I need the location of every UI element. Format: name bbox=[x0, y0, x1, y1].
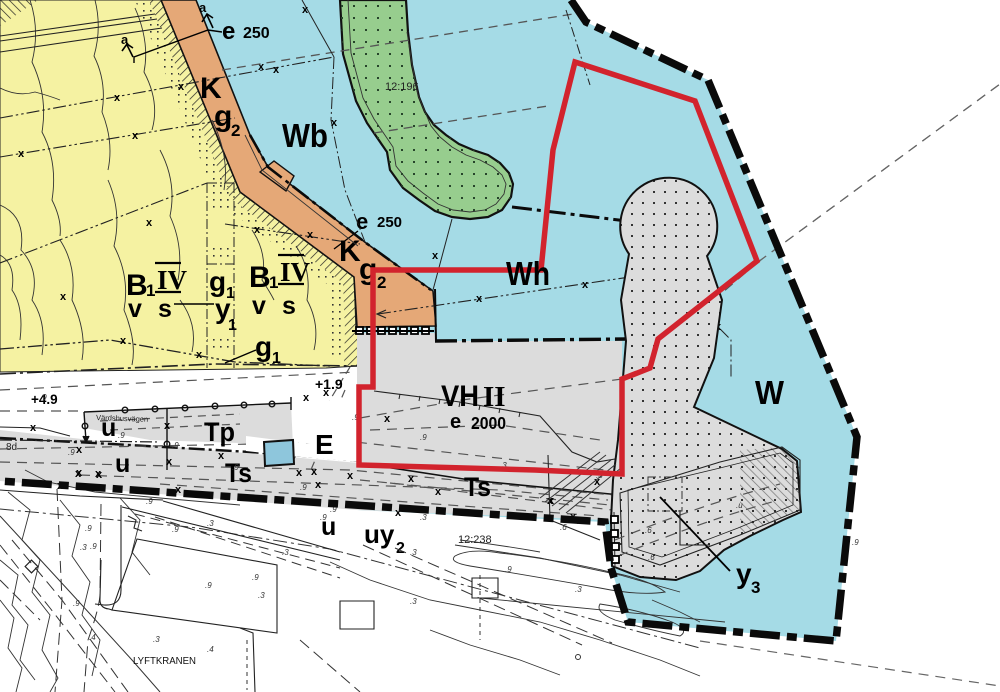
svg-text:x: x bbox=[120, 335, 127, 347]
svg-text:Tp: Tp bbox=[204, 417, 235, 447]
svg-text:1: 1 bbox=[146, 281, 155, 300]
svg-text:.3: .3 bbox=[410, 597, 417, 606]
svg-text:x: x bbox=[258, 61, 265, 73]
svg-text:x: x bbox=[311, 466, 318, 478]
svg-text:x: x bbox=[384, 413, 391, 425]
svg-text:x: x bbox=[476, 293, 483, 305]
svg-text:x: x bbox=[146, 217, 153, 229]
svg-text:.9: .9 bbox=[420, 433, 427, 442]
svg-text:Ts: Ts bbox=[464, 472, 491, 502]
svg-text:.9: .9 bbox=[68, 448, 75, 457]
svg-text:y: y bbox=[736, 558, 752, 589]
svg-text:x: x bbox=[76, 444, 83, 456]
svg-text:.9: .9 bbox=[852, 538, 859, 547]
svg-text:E: E bbox=[315, 429, 334, 460]
svg-text:.9: .9 bbox=[172, 525, 179, 534]
svg-text:x: x bbox=[196, 349, 203, 361]
svg-text:x: x bbox=[178, 81, 185, 93]
svg-text:+1.9: +1.9 bbox=[315, 376, 343, 392]
svg-text:2: 2 bbox=[231, 121, 240, 140]
svg-text:1: 1 bbox=[272, 350, 281, 367]
svg-text:s: s bbox=[158, 295, 172, 323]
svg-text:.3: .3 bbox=[258, 591, 265, 600]
svg-text:.9: .9 bbox=[300, 483, 307, 492]
svg-text:x: x bbox=[347, 470, 354, 482]
svg-text:.9: .9 bbox=[172, 441, 179, 450]
svg-text:.4: .4 bbox=[207, 645, 214, 654]
svg-text:.3: .3 bbox=[80, 543, 87, 552]
svg-text:e: e bbox=[450, 411, 461, 433]
svg-text:x: x bbox=[30, 422, 37, 434]
svg-text:.9: .9 bbox=[118, 431, 125, 440]
svg-text:.6: .6 bbox=[560, 523, 567, 532]
svg-text:II: II bbox=[483, 381, 506, 413]
svg-text:x: x bbox=[307, 229, 314, 241]
svg-text:x: x bbox=[296, 467, 303, 479]
svg-text:B: B bbox=[249, 261, 271, 294]
svg-text:.3: .3 bbox=[207, 519, 214, 528]
svg-text:.9: .9 bbox=[40, 393, 47, 402]
svg-text:x: x bbox=[18, 148, 25, 160]
svg-text:.9: .9 bbox=[252, 573, 259, 582]
svg-text:12:196: 12:196 bbox=[385, 81, 419, 93]
svg-text:uy: uy bbox=[364, 519, 395, 549]
svg-text:x: x bbox=[166, 456, 173, 468]
svg-text:IV: IV bbox=[280, 257, 311, 287]
svg-text:2: 2 bbox=[377, 273, 386, 292]
svg-text:.9: .9 bbox=[85, 524, 92, 533]
svg-text:x: x bbox=[60, 291, 67, 303]
svg-text:Wb: Wb bbox=[282, 117, 328, 154]
svg-text:1: 1 bbox=[228, 317, 237, 334]
svg-text:1: 1 bbox=[269, 273, 278, 292]
svg-text:.4: .4 bbox=[89, 633, 96, 642]
svg-text:.3: .3 bbox=[410, 548, 417, 557]
svg-text:.9: .9 bbox=[232, 463, 239, 472]
svg-text:x: x bbox=[315, 479, 322, 491]
svg-text:e: e bbox=[356, 209, 368, 234]
svg-text:.3: .3 bbox=[153, 635, 160, 644]
svg-text:.9: .9 bbox=[73, 599, 80, 608]
svg-text:x: x bbox=[164, 420, 171, 432]
svg-text:g: g bbox=[255, 331, 272, 362]
svg-text:W: W bbox=[755, 374, 785, 411]
svg-text:x: x bbox=[75, 468, 82, 480]
svg-text:IV: IV bbox=[157, 265, 188, 295]
svg-text:x: x bbox=[132, 130, 139, 142]
svg-text:.9: .9 bbox=[146, 497, 153, 506]
svg-text:x: x bbox=[435, 486, 442, 498]
svg-text:x: x bbox=[432, 250, 439, 262]
svg-text:.9: .9 bbox=[90, 542, 97, 551]
svg-text:Värdshusvägen: Värdshusvägen bbox=[96, 413, 148, 424]
svg-text:x: x bbox=[408, 473, 415, 485]
svg-text:x: x bbox=[331, 117, 338, 129]
svg-text:3: 3 bbox=[751, 578, 760, 597]
svg-text:Wh: Wh bbox=[506, 255, 550, 292]
svg-text:.3: .3 bbox=[282, 548, 289, 557]
svg-text:a: a bbox=[199, 0, 207, 15]
svg-text:x: x bbox=[302, 4, 309, 16]
svg-text:x: x bbox=[254, 224, 261, 236]
svg-text:.9: .9 bbox=[505, 565, 512, 574]
svg-text:v: v bbox=[128, 295, 142, 323]
svg-text:250: 250 bbox=[243, 25, 270, 42]
svg-text:x: x bbox=[114, 92, 121, 104]
svg-text:u: u bbox=[115, 450, 130, 478]
svg-text:s: s bbox=[282, 292, 296, 320]
svg-text:.9: .9 bbox=[205, 581, 212, 590]
svg-text:.9: .9 bbox=[320, 513, 327, 522]
svg-text:.6: .6 bbox=[648, 553, 655, 562]
svg-text:x: x bbox=[582, 279, 589, 291]
svg-text:250: 250 bbox=[377, 214, 402, 231]
svg-text:.3: .3 bbox=[575, 585, 582, 594]
svg-text:x: x bbox=[273, 64, 280, 76]
svg-text:e: e bbox=[222, 18, 235, 45]
svg-text:x: x bbox=[95, 468, 102, 480]
svg-text:v: v bbox=[252, 292, 266, 320]
svg-text:LYFTKRANEN: LYFTKRANEN bbox=[133, 655, 196, 667]
svg-text:.u: .u bbox=[736, 501, 743, 510]
svg-text:.6: .6 bbox=[645, 526, 652, 535]
svg-text:x: x bbox=[218, 450, 225, 462]
svg-text:VH: VH bbox=[441, 380, 479, 413]
svg-text:2000: 2000 bbox=[471, 413, 506, 433]
svg-text:g: g bbox=[214, 100, 232, 133]
svg-text:8d: 8d bbox=[6, 442, 17, 453]
svg-text:.3: .3 bbox=[420, 513, 427, 522]
